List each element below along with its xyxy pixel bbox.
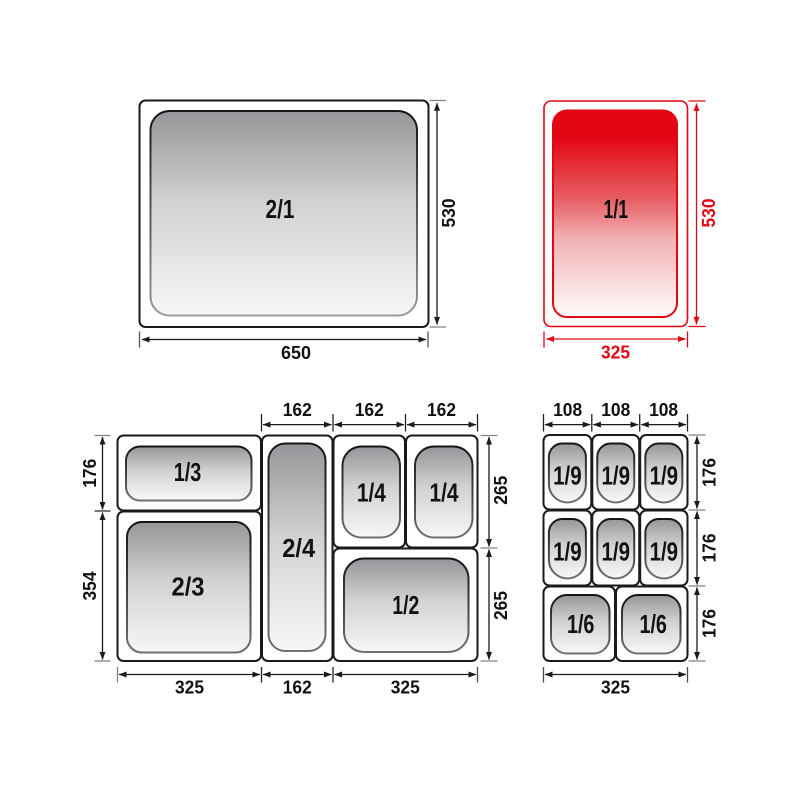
svg-text:1/4: 1/4 <box>430 478 459 508</box>
svg-text:325: 325 <box>175 676 204 697</box>
svg-text:1/9: 1/9 <box>602 461 631 491</box>
svg-text:650: 650 <box>281 342 311 363</box>
svg-text:325: 325 <box>601 676 630 697</box>
svg-text:108: 108 <box>649 399 678 420</box>
svg-text:1/9: 1/9 <box>650 461 679 491</box>
svg-text:325: 325 <box>391 676 420 697</box>
svg-text:265: 265 <box>490 476 511 505</box>
svg-text:354: 354 <box>79 571 100 601</box>
svg-text:530: 530 <box>438 199 459 228</box>
svg-text:1/6: 1/6 <box>639 609 667 639</box>
svg-text:325: 325 <box>601 342 630 363</box>
svg-text:530: 530 <box>698 199 719 228</box>
svg-text:162: 162 <box>355 399 384 420</box>
svg-text:108: 108 <box>601 399 630 420</box>
svg-text:162: 162 <box>427 399 456 420</box>
svg-text:176: 176 <box>79 459 100 488</box>
svg-text:176: 176 <box>699 534 720 563</box>
svg-text:1/3: 1/3 <box>174 457 202 487</box>
svg-text:1/9: 1/9 <box>602 536 631 566</box>
svg-text:1/9: 1/9 <box>553 536 582 566</box>
svg-text:176: 176 <box>699 609 720 638</box>
svg-text:1/9: 1/9 <box>553 461 582 491</box>
svg-text:265: 265 <box>490 591 511 620</box>
svg-text:162: 162 <box>283 676 312 697</box>
svg-text:1/4: 1/4 <box>357 478 386 508</box>
svg-text:1/2: 1/2 <box>392 590 419 620</box>
svg-text:2/3: 2/3 <box>172 572 205 602</box>
svg-text:162: 162 <box>283 399 312 420</box>
svg-text:108: 108 <box>553 399 582 420</box>
svg-text:176: 176 <box>699 458 720 487</box>
svg-text:1/6: 1/6 <box>567 609 595 639</box>
svg-text:2/4: 2/4 <box>282 533 315 563</box>
svg-text:2/1: 2/1 <box>266 196 295 224</box>
svg-text:1/9: 1/9 <box>650 536 679 566</box>
svg-text:1/1: 1/1 <box>604 196 629 224</box>
